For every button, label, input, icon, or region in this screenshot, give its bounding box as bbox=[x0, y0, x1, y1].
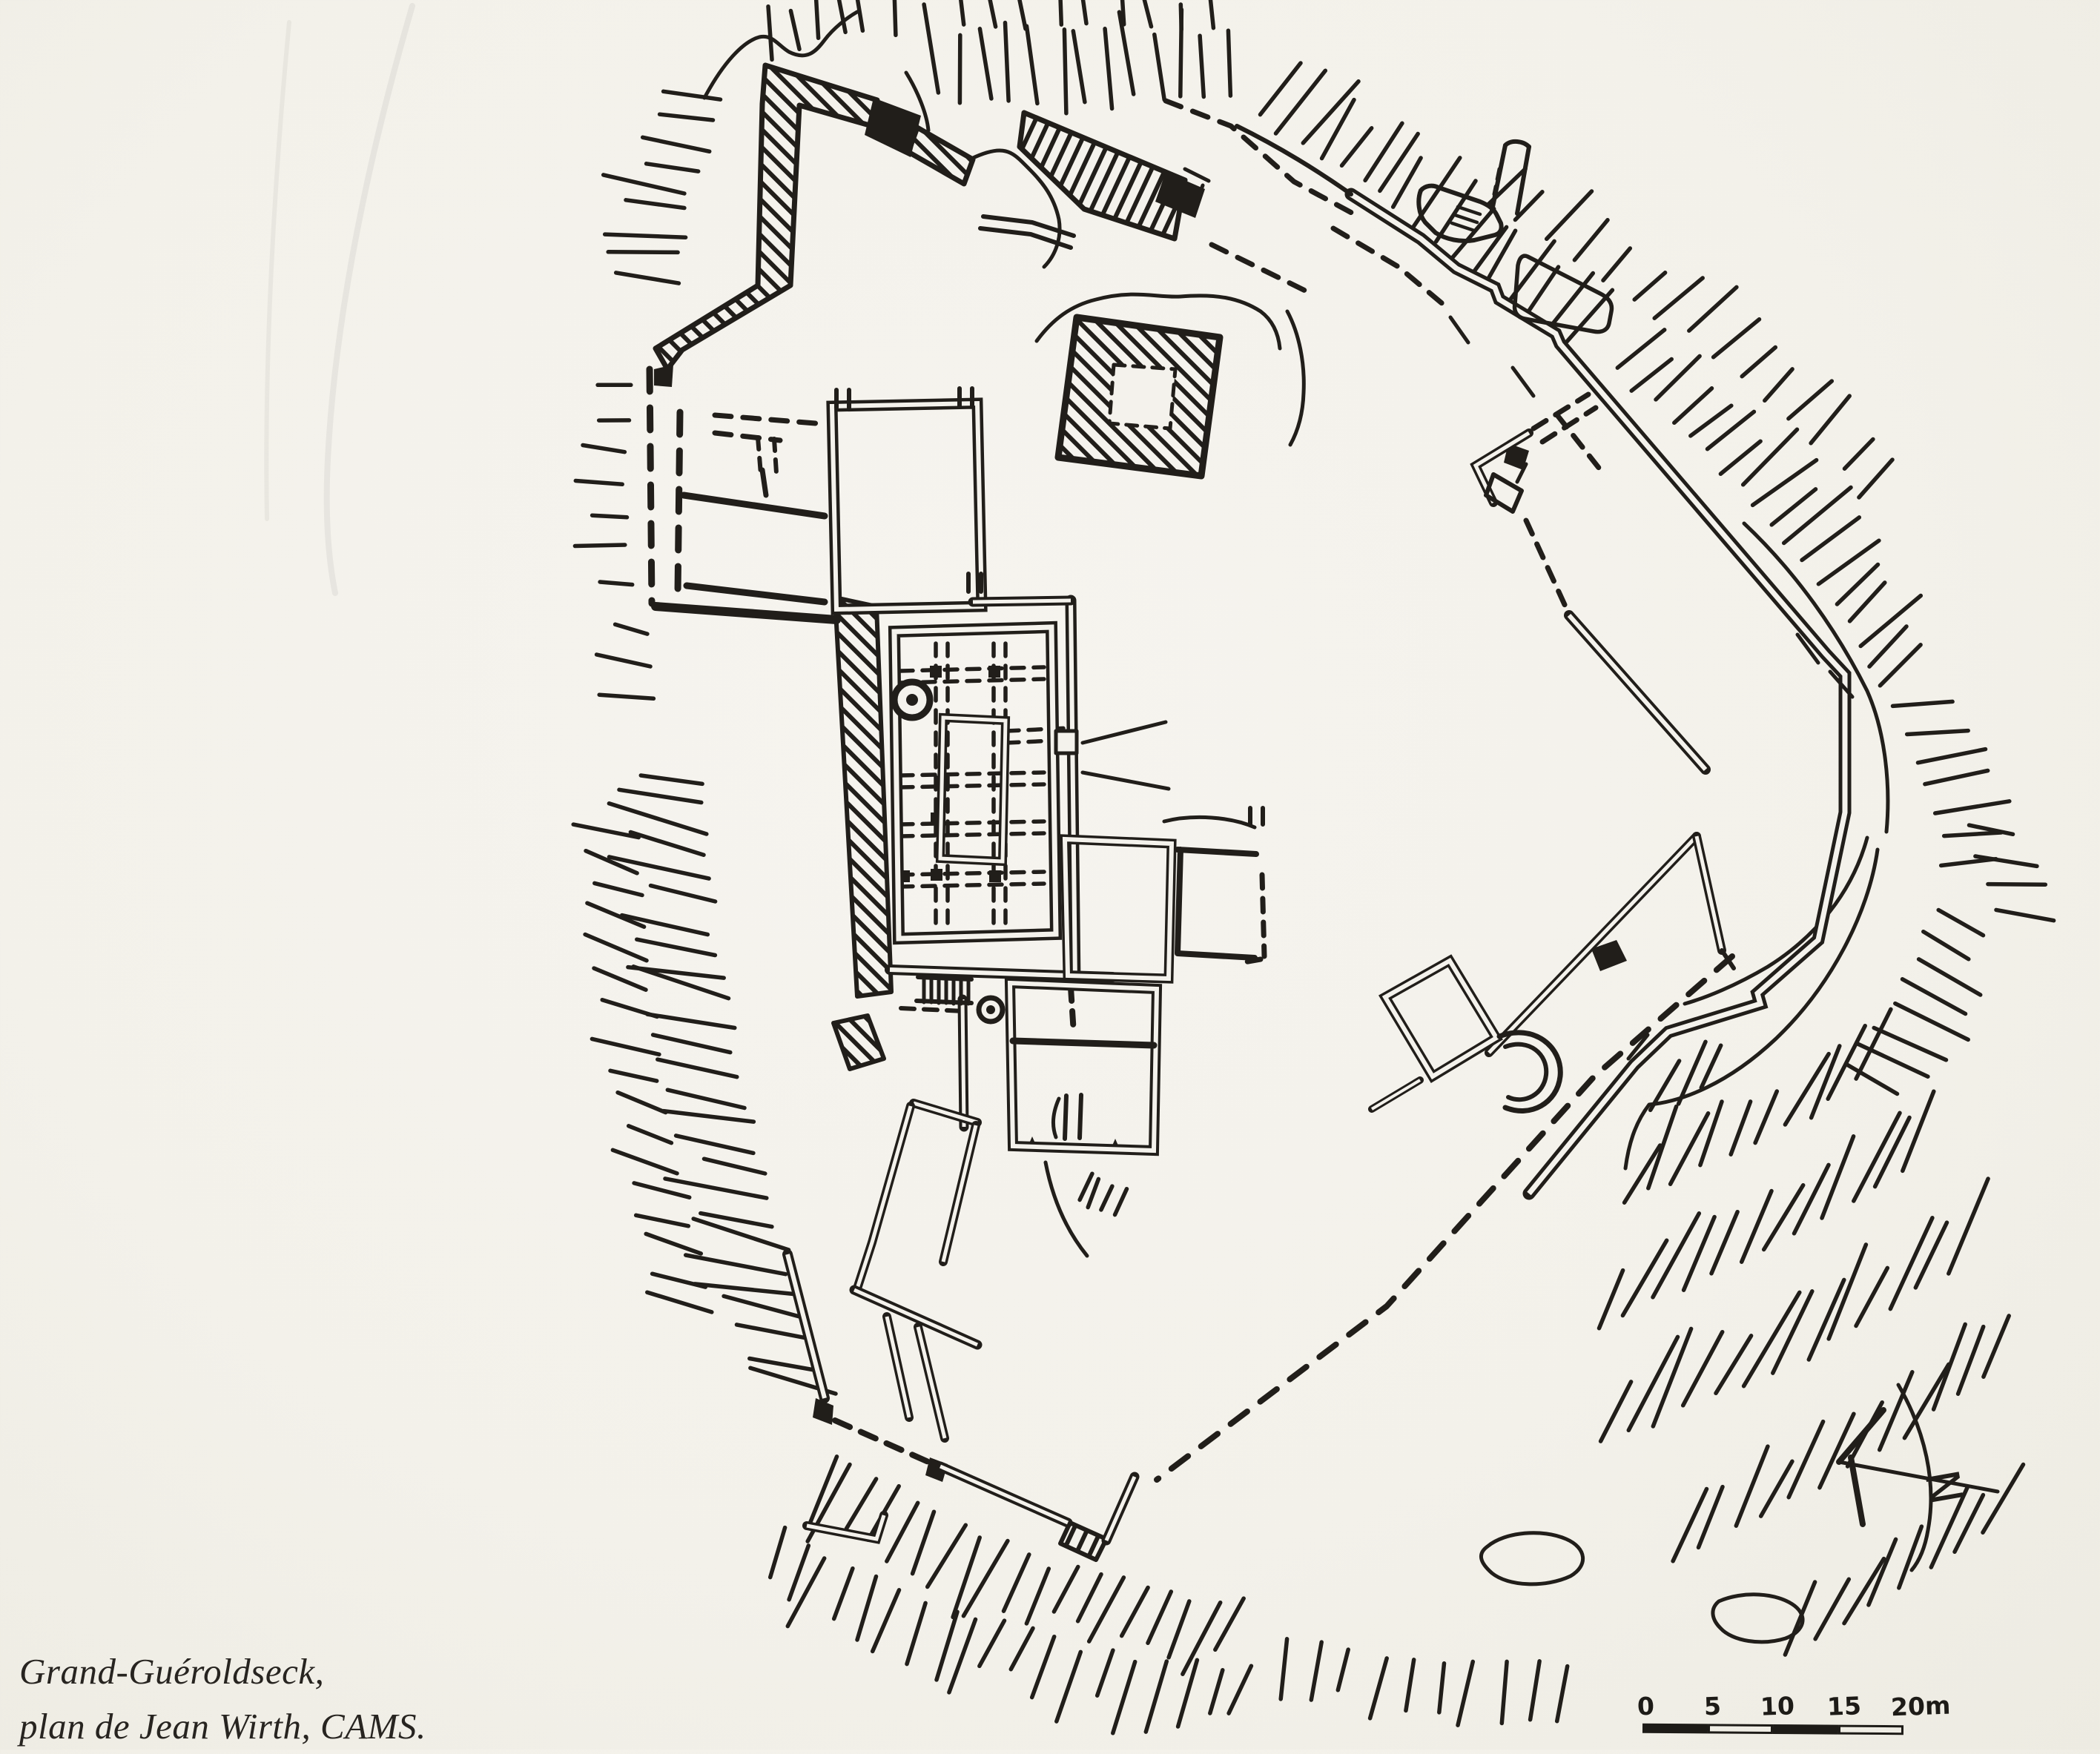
scale-bar-segment bbox=[1773, 1724, 1838, 1735]
scale-label-15: 15 bbox=[1826, 1691, 1861, 1721]
caption: Grand-Guéroldseck, plan de Jean Wirth, C… bbox=[19, 1644, 426, 1754]
scale-bar: 0 5 10 15 20m bbox=[1636, 1692, 1932, 1744]
scale-bar-segment bbox=[1708, 1724, 1773, 1734]
scale-label-10: 10 bbox=[1760, 1691, 1794, 1721]
scale-bar-graphic bbox=[1642, 1724, 1903, 1735]
caption-title: Grand-Guéroldseck, bbox=[19, 1644, 426, 1699]
plan-linework: N bbox=[266, 0, 2053, 1733]
scale-label-20m: 20m bbox=[1890, 1691, 1951, 1722]
scanned-plan-page: N Grand-Guéroldseck, plan de Jean Wirth,… bbox=[0, 0, 2100, 1750]
scale-label-5: 5 bbox=[1703, 1692, 1721, 1721]
caption-author: plan de Jean Wirth, CAMS. bbox=[19, 1699, 426, 1754]
castle-plan: N bbox=[0, 0, 2100, 1750]
scale-bar-segment bbox=[1838, 1725, 1903, 1735]
scale-label-0: 0 bbox=[1637, 1692, 1654, 1721]
scale-bar-segment bbox=[1642, 1724, 1708, 1734]
svg-text:N: N bbox=[1914, 1466, 1973, 1509]
